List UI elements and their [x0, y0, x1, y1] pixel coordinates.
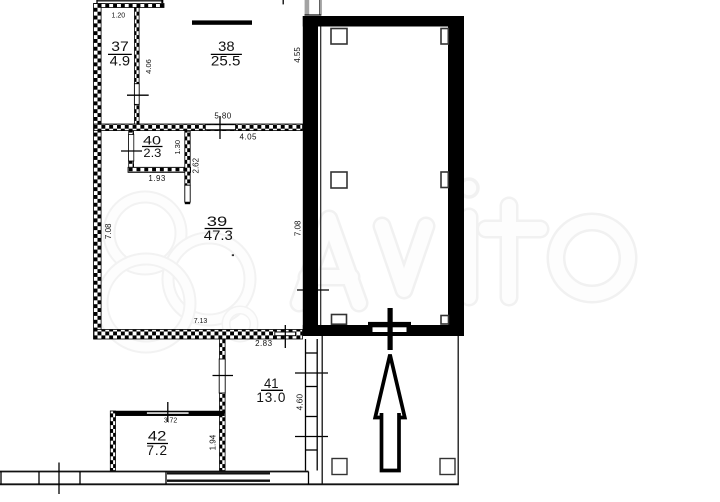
- svg-text:5.80: 5.80: [214, 112, 231, 121]
- svg-text:38: 38: [218, 39, 235, 54]
- svg-text:4.60: 4.60: [295, 394, 305, 411]
- svg-text:1.20: 1.20: [111, 13, 125, 20]
- svg-text:4.9: 4.9: [110, 54, 131, 69]
- svg-text:7.13: 7.13: [194, 318, 208, 325]
- svg-text:7.2: 7.2: [146, 443, 167, 458]
- svg-text:42: 42: [148, 428, 167, 443]
- svg-text:1.94: 1.94: [209, 434, 218, 450]
- svg-text:1.30: 1.30: [173, 140, 182, 155]
- svg-text:47.3: 47.3: [204, 228, 233, 243]
- svg-text:25.5: 25.5: [211, 54, 241, 69]
- svg-text:2.3: 2.3: [143, 146, 161, 160]
- svg-text:1.93: 1.93: [148, 174, 165, 183]
- svg-text:7.08: 7.08: [293, 220, 302, 236]
- svg-text:4.55: 4.55: [293, 47, 302, 63]
- svg-text:7.08: 7.08: [104, 223, 113, 239]
- svg-text:41: 41: [264, 376, 279, 391]
- svg-text:4.05: 4.05: [240, 133, 257, 142]
- svg-text:2.62: 2.62: [192, 157, 201, 173]
- svg-text:37: 37: [111, 39, 129, 54]
- svg-text:2.83: 2.83: [255, 339, 272, 348]
- svg-text:39: 39: [207, 214, 228, 229]
- svg-text:13.0: 13.0: [256, 390, 286, 405]
- svg-text:4.06: 4.06: [144, 59, 153, 74]
- svg-text:3.72: 3.72: [164, 417, 178, 424]
